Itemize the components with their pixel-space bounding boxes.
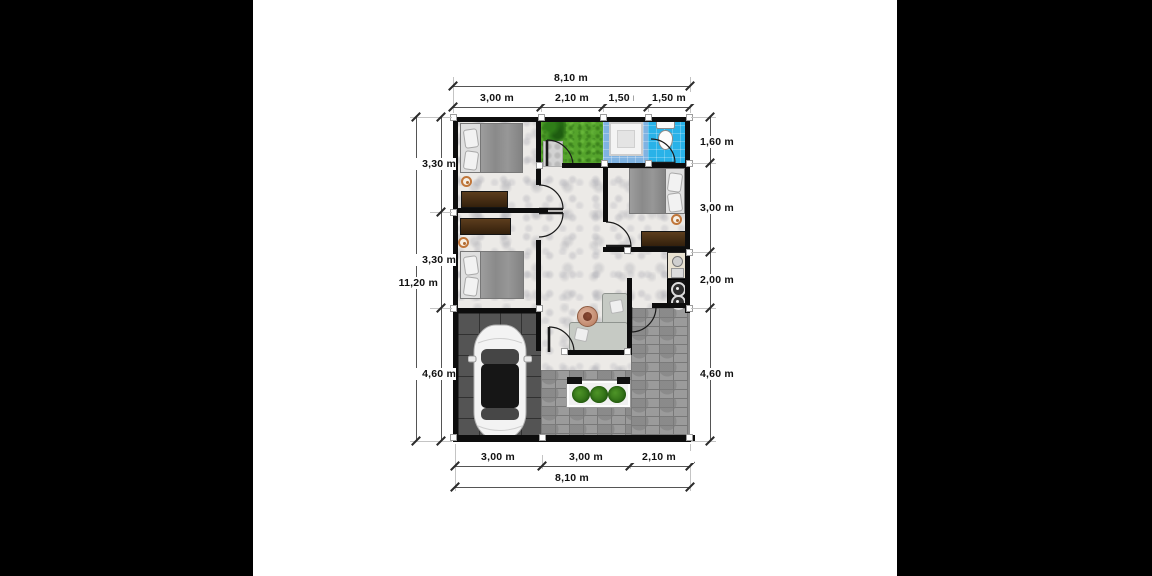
dim-label: 1,60 m xyxy=(700,136,746,148)
terrace-edge-right xyxy=(688,313,690,438)
wall-bedroom1-right xyxy=(536,117,541,185)
column-marker xyxy=(600,114,607,121)
column-marker xyxy=(686,434,693,441)
floor-plan-canvas: 8,10 m 3,00 m 2,10 m 1,50 m 1,50 m 11,20… xyxy=(0,0,1152,576)
dim-label: 4,60 m xyxy=(700,368,746,380)
dim-label: 4,60 m xyxy=(412,368,456,380)
dim-label: 3,00 m xyxy=(700,202,746,214)
dim-label: 2,10 m xyxy=(624,451,694,463)
dim-line-top-segments xyxy=(453,107,690,108)
dim-label: 3,00 m xyxy=(463,451,533,463)
dim-label: 3,00 m xyxy=(462,92,532,104)
wall-exterior-bottom xyxy=(453,435,695,442)
wall-bedroom3-bottom xyxy=(603,247,690,252)
extension-line xyxy=(691,441,716,442)
dim-line-top-total xyxy=(453,86,690,87)
column-marker xyxy=(624,247,631,254)
column-marker xyxy=(536,305,543,312)
wall-garage-top xyxy=(453,308,541,313)
wall-toprow-bottom xyxy=(562,163,690,168)
wall-living-right xyxy=(627,278,632,355)
column-marker xyxy=(536,162,543,169)
dim-label: 3,00 m xyxy=(551,451,621,463)
wall-kitchen-bottom xyxy=(652,303,690,308)
extension-line xyxy=(691,308,716,309)
dim-line-bottom-segments xyxy=(455,466,690,467)
column-marker xyxy=(601,160,608,167)
door-arc-bedroom-3 xyxy=(606,222,631,247)
door-arc-toilet xyxy=(651,139,675,163)
extension-line xyxy=(691,252,716,253)
column-marker xyxy=(645,160,652,167)
wall-exterior-right xyxy=(685,117,690,313)
column-marker xyxy=(539,434,546,441)
dim-line-bottom-total xyxy=(455,487,690,488)
column-marker xyxy=(645,114,652,121)
column-marker xyxy=(450,434,457,441)
wall-garage-right xyxy=(536,313,541,351)
dim-label: 3,30 m xyxy=(412,254,456,266)
door-arc-terrace xyxy=(631,307,656,332)
column-marker xyxy=(561,348,568,355)
dim-label: 3,30 m xyxy=(412,158,456,170)
wall-living-bottom xyxy=(564,350,631,355)
dim-label: 1,50 m xyxy=(634,92,704,104)
wall-bedroom3-left xyxy=(603,168,608,222)
dim-label-top-total: 8,10 m xyxy=(536,72,606,84)
column-marker xyxy=(624,348,631,355)
wall-exterior-top xyxy=(453,117,690,122)
column-marker xyxy=(538,114,545,121)
door-arc-bedroom-1 xyxy=(539,185,563,209)
dim-label: 2,00 m xyxy=(700,274,746,286)
extension-line xyxy=(691,117,716,118)
extension-line xyxy=(691,163,716,164)
door-arc-bedroom-2 xyxy=(539,213,563,237)
dim-label-bottom-total: 8,10 m xyxy=(537,472,607,484)
dim-label-left-total: 11,20 m xyxy=(392,277,438,289)
wall-bedroom-divider xyxy=(453,208,548,213)
wall-bedroom2-right xyxy=(536,240,541,308)
